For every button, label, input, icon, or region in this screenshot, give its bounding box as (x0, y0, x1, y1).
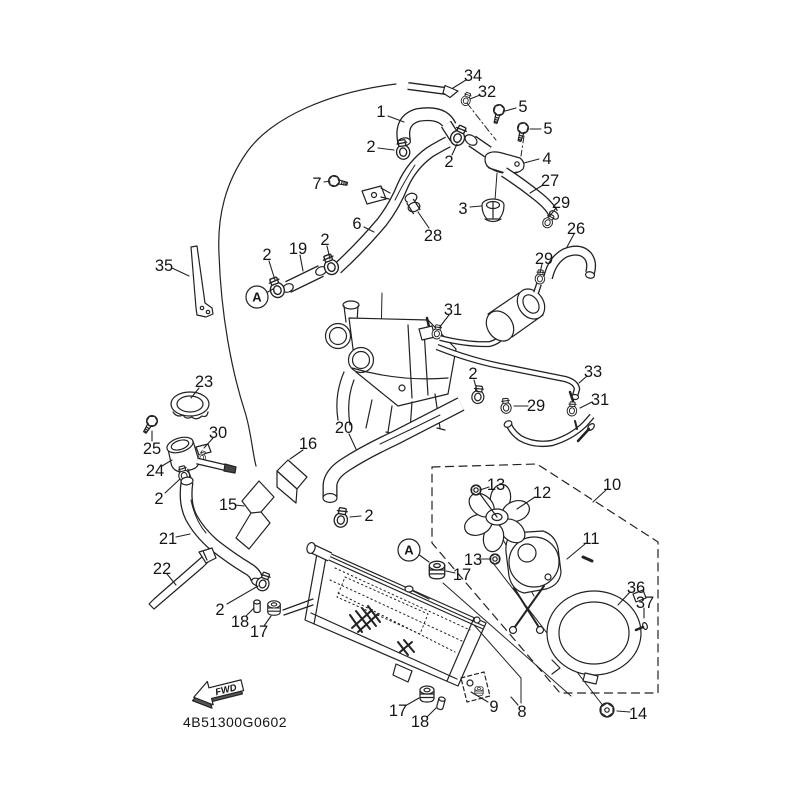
part-number-label: 14 (629, 705, 647, 723)
hose-6 (337, 142, 448, 269)
part-number-label: 26 (567, 220, 585, 238)
part-number-label: 29 (535, 250, 553, 268)
leader-line (505, 108, 516, 111)
part-number-label: 24 (146, 462, 164, 480)
leader-line (418, 212, 429, 228)
part-number-label: 2 (320, 231, 329, 249)
part-number-label: 17 (453, 566, 471, 584)
part-number-label: 29 (552, 194, 570, 212)
small-parts-box (461, 672, 490, 702)
part-number-label: 9 (489, 698, 498, 716)
part-number-label: 2 (366, 138, 375, 156)
part-number-label: 17 (389, 702, 407, 720)
part-number-label: 2 (364, 507, 373, 525)
radiator-inlet-stub (313, 549, 330, 557)
part-number-label: 4 (542, 150, 551, 168)
part-number-label: 29 (527, 397, 545, 415)
part-number-label: 2 (444, 153, 453, 171)
part-number-label: 17 (250, 623, 268, 641)
part-number-label: 5 (518, 98, 527, 116)
leader-line (172, 268, 189, 276)
part-number-label: 2 (154, 490, 163, 508)
part-number-label: 19 (289, 240, 307, 258)
leader-line (378, 148, 394, 150)
leader-line (418, 554, 429, 562)
part-number-label: 6 (352, 215, 361, 233)
stay-35 (191, 246, 213, 317)
radiator (254, 542, 486, 710)
fan-shroud (547, 590, 646, 684)
part-number-label: 31 (444, 301, 462, 319)
breather-hose-assembly (500, 392, 595, 444)
part-number-label: 22 (153, 560, 171, 578)
leader-line (350, 516, 361, 517)
ref-marker-label: A (404, 543, 414, 558)
part-number-label: 11 (582, 530, 599, 548)
part-number-label: 18 (231, 613, 249, 631)
part-number-label: 1 (376, 103, 385, 121)
part-number-label: 15 (219, 496, 237, 514)
leader-line (176, 534, 190, 537)
part-number-label: 20 (335, 419, 353, 437)
part-number-label: 3 (458, 200, 467, 218)
part-code: 4B51300G0602 (183, 714, 287, 730)
part-number-label: 8 (517, 703, 526, 721)
diagram-page: FWD 4B51300G0602 12343255427292632876219… (0, 0, 800, 800)
part-number-label: 37 (636, 594, 654, 612)
part-number-label: 30 (209, 424, 227, 442)
part-number-label: 7 (312, 175, 321, 193)
part-number-label: 33 (584, 363, 602, 381)
part-number-label: 25 (143, 440, 161, 458)
leader-line (165, 479, 180, 493)
part-number-label: 35 (155, 257, 173, 275)
air-seal-15-16 (236, 460, 307, 549)
part-number-label: 27 (541, 172, 559, 190)
part-number-label: 13 (487, 476, 505, 494)
part-number-label: 18 (411, 713, 429, 731)
leader-line (524, 159, 539, 163)
leader-line (470, 206, 481, 207)
hose-33 (437, 347, 577, 396)
part-number-label: 5 (543, 120, 552, 138)
part-number-label: 31 (591, 391, 609, 409)
part-number-label: 32 (478, 83, 496, 101)
fan-motor (506, 531, 592, 634)
part-number-label: 10 (603, 476, 621, 494)
part-number-label: 16 (299, 435, 317, 453)
parts-diagram-canvas: FWD 4B51300G0602 12343255427292632876219… (0, 0, 800, 800)
part-number-label: 2 (262, 246, 271, 264)
ref-marker-label: A (252, 290, 262, 305)
part-number-label: 12 (533, 484, 551, 502)
part-number-label: 2 (468, 365, 477, 383)
part-number-label: 21 (159, 530, 177, 548)
part-number-label: 23 (195, 373, 213, 391)
part-number-label: 2 (215, 601, 224, 619)
fwd-arrow: FWD (189, 674, 246, 713)
part-number-label: 28 (424, 227, 442, 245)
